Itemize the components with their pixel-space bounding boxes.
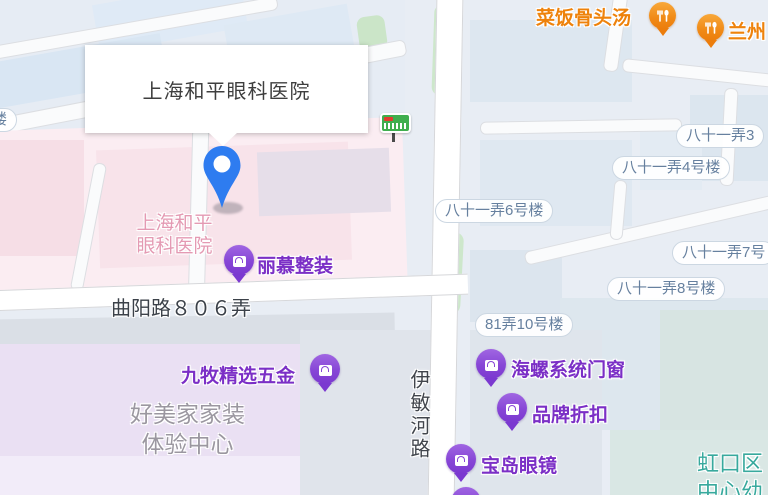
info-window[interactable]: 上海和平眼科医院 [85, 45, 368, 133]
fork-spoon-icon [656, 9, 670, 23]
homedecor-area-label: 好美家家装 体验中心 [100, 399, 275, 459]
shopping-bag-icon [506, 404, 519, 415]
location-marker-pin[interactable] [202, 145, 242, 210]
district-label: 虹口区 中心幼 [697, 450, 763, 495]
hospital-area-label-line2: 眼科医院 [112, 235, 237, 258]
poi-pin-brand-discount[interactable] [497, 393, 527, 423]
shopping-bag-icon [485, 360, 498, 371]
poi-label-brand-discount[interactable]: 品牌折扣 [532, 400, 608, 427]
shopping-bag-icon [319, 365, 332, 376]
poi-label-lanzhou[interactable]: 兰州 [728, 17, 766, 44]
homedecor-area-label-line2: 体验中心 [100, 429, 275, 459]
poi-pin-lanzhou[interactable] [697, 14, 724, 41]
poi-label-baodao-glasses[interactable]: 宝岛眼镜 [481, 451, 557, 478]
map-block [0, 456, 332, 495]
fork-spoon-icon [704, 21, 718, 35]
map-canvas[interactable]: 上海和平 眼科医院 好美家家装 体验中心 曲阳路８０６弄 伊敏河路 虹口区 中心… [0, 0, 768, 495]
map-road-minor [622, 58, 768, 88]
info-window-title: 上海和平眼科医院 [143, 75, 311, 104]
poi-pin-caifan-soup[interactable] [649, 2, 676, 29]
map-building [0, 140, 84, 256]
poi-label-caifan-soup[interactable]: 菜饭骨头汤 [536, 3, 631, 30]
poi-pin-baodao-glasses[interactable] [446, 444, 476, 474]
poi-label-jomoo-hardware[interactable]: 九牧精选五金 [181, 361, 295, 388]
bus-stop-pole [392, 132, 395, 142]
building-pill-81long-4[interactable]: 八十一弄4号楼 [612, 156, 730, 180]
building-pill-81long-6[interactable]: 八十一弄6号楼 [435, 199, 553, 223]
homedecor-area-label-line1: 好美家家装 [100, 399, 275, 429]
road-label-quyang806: 曲阳路８０６弄 [111, 292, 251, 321]
bus-stop-icon[interactable] [380, 113, 411, 133]
road-label-yiminhe: 伊敏河路 [404, 369, 433, 461]
hospital-area-label-line1: 上海和平 [112, 212, 237, 235]
hospital-area-label: 上海和平 眼科医院 [112, 212, 237, 258]
building-pill-81long-10[interactable]: 81弄10号楼 [475, 313, 573, 337]
poi-label-limu-decor[interactable]: 丽慕整装 [257, 251, 333, 278]
info-window-pointer [208, 132, 238, 146]
shopping-bag-icon [233, 256, 246, 267]
poi-label-hailuo-windows[interactable]: 海螺系统门窗 [511, 355, 625, 382]
poi-pin-jomoo-hardware[interactable] [310, 354, 340, 384]
building-pill-81long-3[interactable]: 八十一弄3 [676, 124, 764, 148]
poi-pin-limu-decor[interactable] [224, 245, 254, 275]
district-label-line1: 虹口区 [697, 450, 763, 478]
district-label-line2: 中心幼 [697, 478, 763, 495]
building-pill-81long-8[interactable]: 八十一弄8号楼 [607, 277, 725, 301]
shopping-bag-icon [455, 455, 468, 466]
poi-pin-hailuo-windows[interactable] [476, 349, 506, 379]
building-pill-81long-7[interactable]: 八十一弄7号 [672, 241, 768, 265]
map-building [257, 148, 391, 217]
